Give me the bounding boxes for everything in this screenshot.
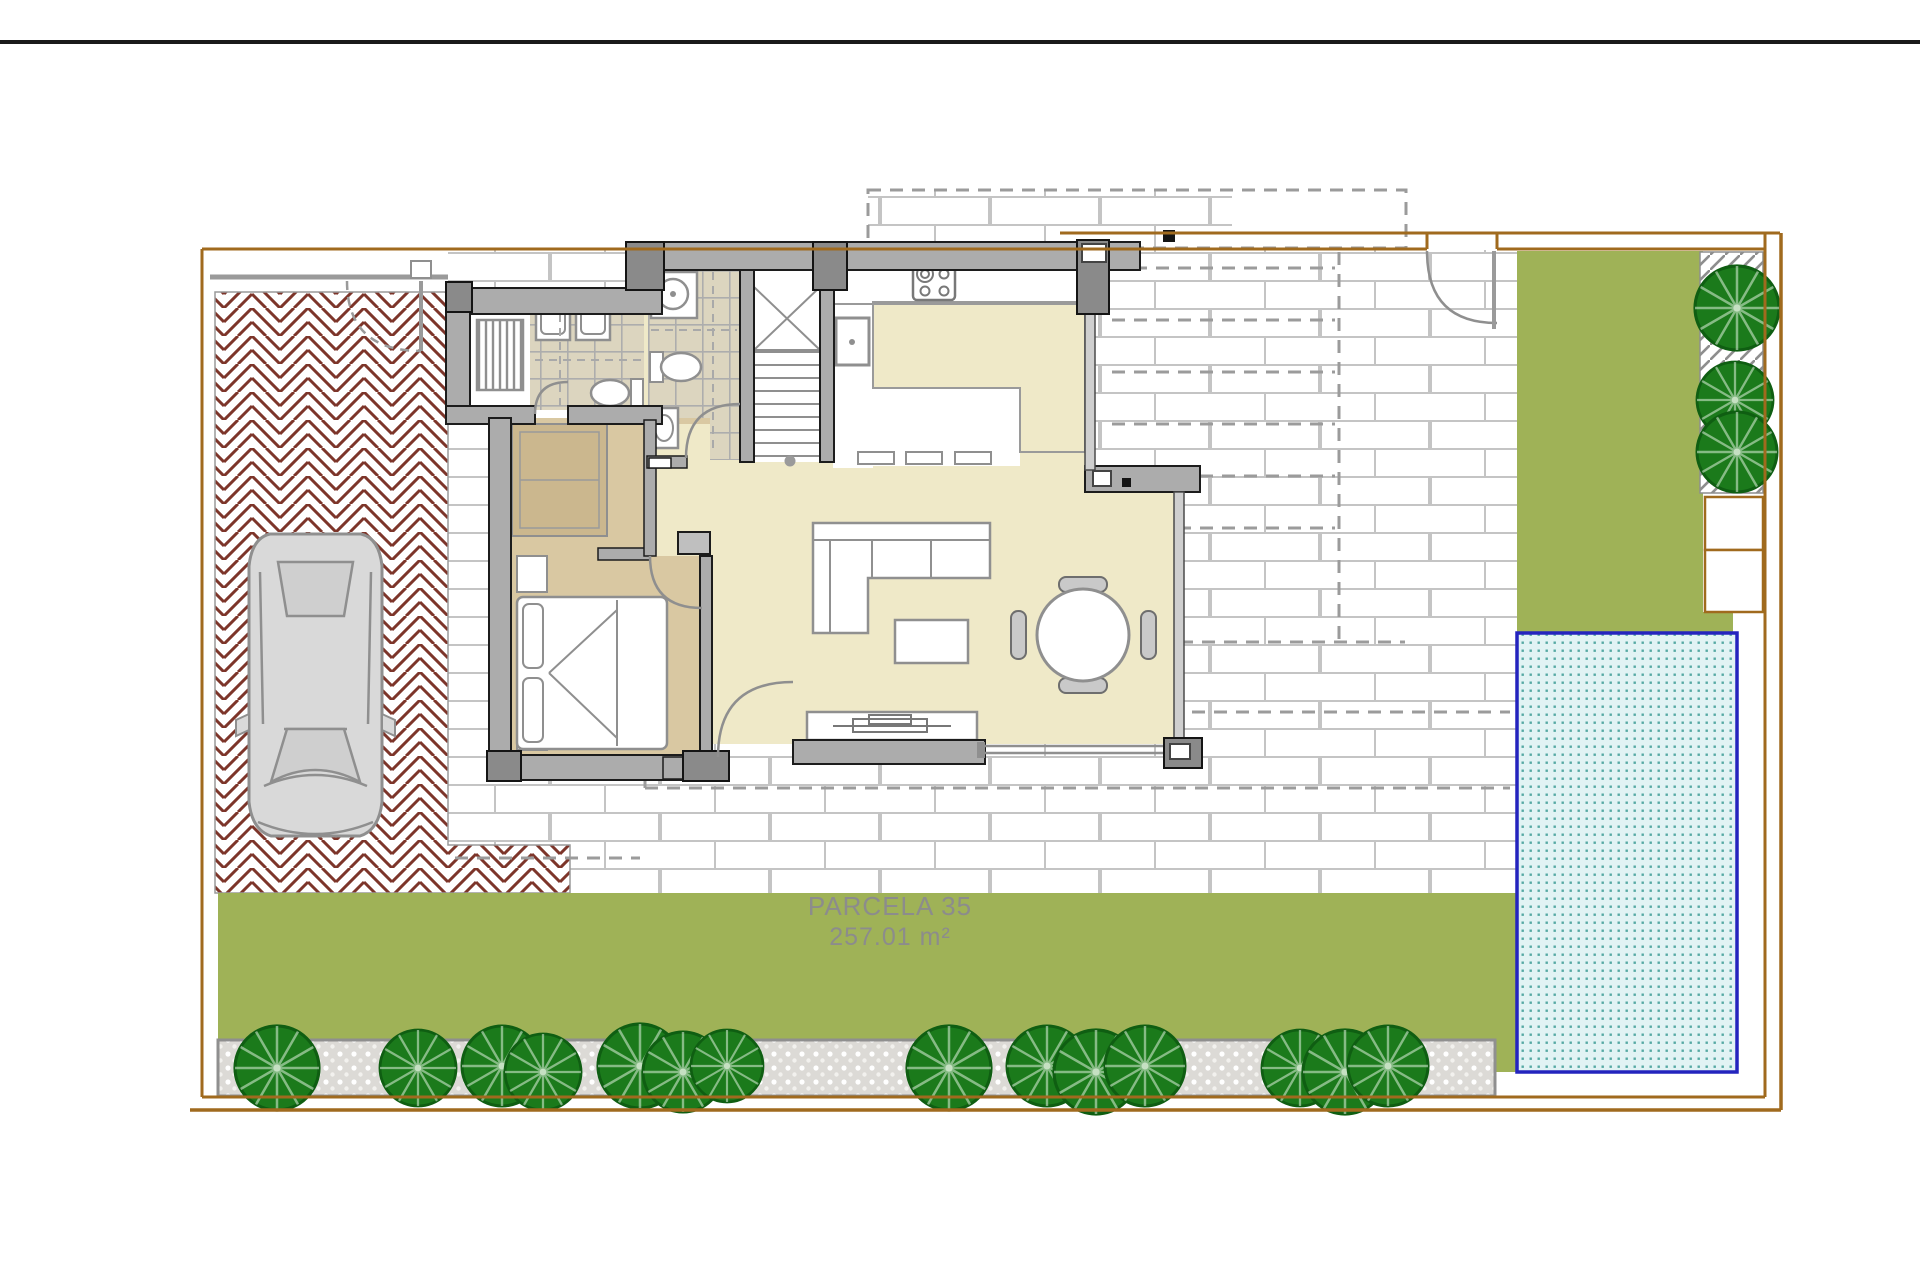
kitchen-counter-zone — [833, 270, 1085, 304]
floor-plan-canvas: PARCELA 35 257.01 m² — [0, 0, 1920, 1280]
chair — [1141, 611, 1156, 659]
tree — [505, 1034, 581, 1110]
door-frame — [678, 532, 710, 554]
bar-stools — [858, 452, 991, 464]
rear-window — [278, 562, 353, 616]
tree — [1105, 1026, 1185, 1106]
gate-post — [411, 261, 431, 278]
tv-cabinet — [807, 712, 977, 740]
parcel-area: 257.01 m² — [829, 923, 951, 951]
house — [446, 230, 1202, 781]
washing-machine — [477, 320, 523, 390]
swimming-pool — [1517, 633, 1737, 1072]
stair-newel — [785, 456, 796, 467]
planter-box — [1705, 497, 1763, 550]
coffee-table — [895, 620, 968, 663]
kitchen-floor — [873, 388, 1020, 466]
parcel-name: PARCELA 35 — [808, 891, 972, 921]
planter-box — [1705, 550, 1763, 612]
living-window — [1174, 492, 1184, 742]
chair — [1011, 611, 1026, 659]
toilet-tank — [631, 379, 643, 407]
fridge — [836, 318, 869, 365]
tree — [380, 1030, 456, 1106]
nightstand — [517, 556, 547, 592]
toilet — [591, 380, 629, 406]
tree — [691, 1030, 763, 1102]
top-divider-line — [0, 40, 1920, 44]
tree — [1348, 1026, 1428, 1106]
kitchen-window — [1085, 312, 1095, 470]
floor-plan-page: PARCELA 35 257.01 m² — [0, 0, 1920, 1280]
toilet — [661, 353, 701, 381]
car — [236, 534, 395, 836]
wardrobe — [512, 424, 607, 536]
wall-niche — [649, 458, 671, 468]
